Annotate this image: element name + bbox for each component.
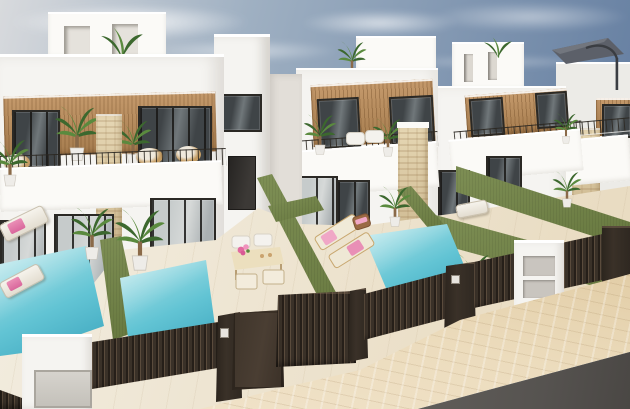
pedestrian-gate <box>232 310 284 390</box>
potted-palm-icon <box>378 182 412 230</box>
meter-panel <box>523 280 555 298</box>
potted-palm-icon <box>114 198 166 280</box>
house-number-plaque <box>452 276 459 283</box>
villa-a-roofbox-recess <box>64 26 90 56</box>
potted-palm-icon <box>550 170 584 208</box>
villa-b-window <box>220 94 262 132</box>
utility-cabinet-door <box>34 370 92 408</box>
balcony-plant-icon <box>303 110 337 158</box>
potted-palm-icon <box>70 196 114 270</box>
pink-towel <box>6 276 23 291</box>
balcony-chair <box>365 130 384 143</box>
meter-panel <box>523 256 555 276</box>
balcony-chair <box>346 132 365 145</box>
balcony-plant-icon <box>552 112 580 144</box>
rooftop-plant-icon <box>482 36 514 60</box>
potted-palm-icon <box>0 130 30 194</box>
cloud <box>430 2 630 32</box>
sun-loungers <box>308 212 380 284</box>
villa-b-entry-door <box>228 156 256 210</box>
pink-towel <box>7 218 26 235</box>
architectural-render <box>0 0 630 409</box>
house-number-plaque <box>221 329 228 337</box>
dining-set <box>226 228 300 298</box>
driveway-gate <box>276 291 356 367</box>
villa-d-roofbox-vent <box>464 54 473 82</box>
pillar-cap <box>397 122 429 128</box>
